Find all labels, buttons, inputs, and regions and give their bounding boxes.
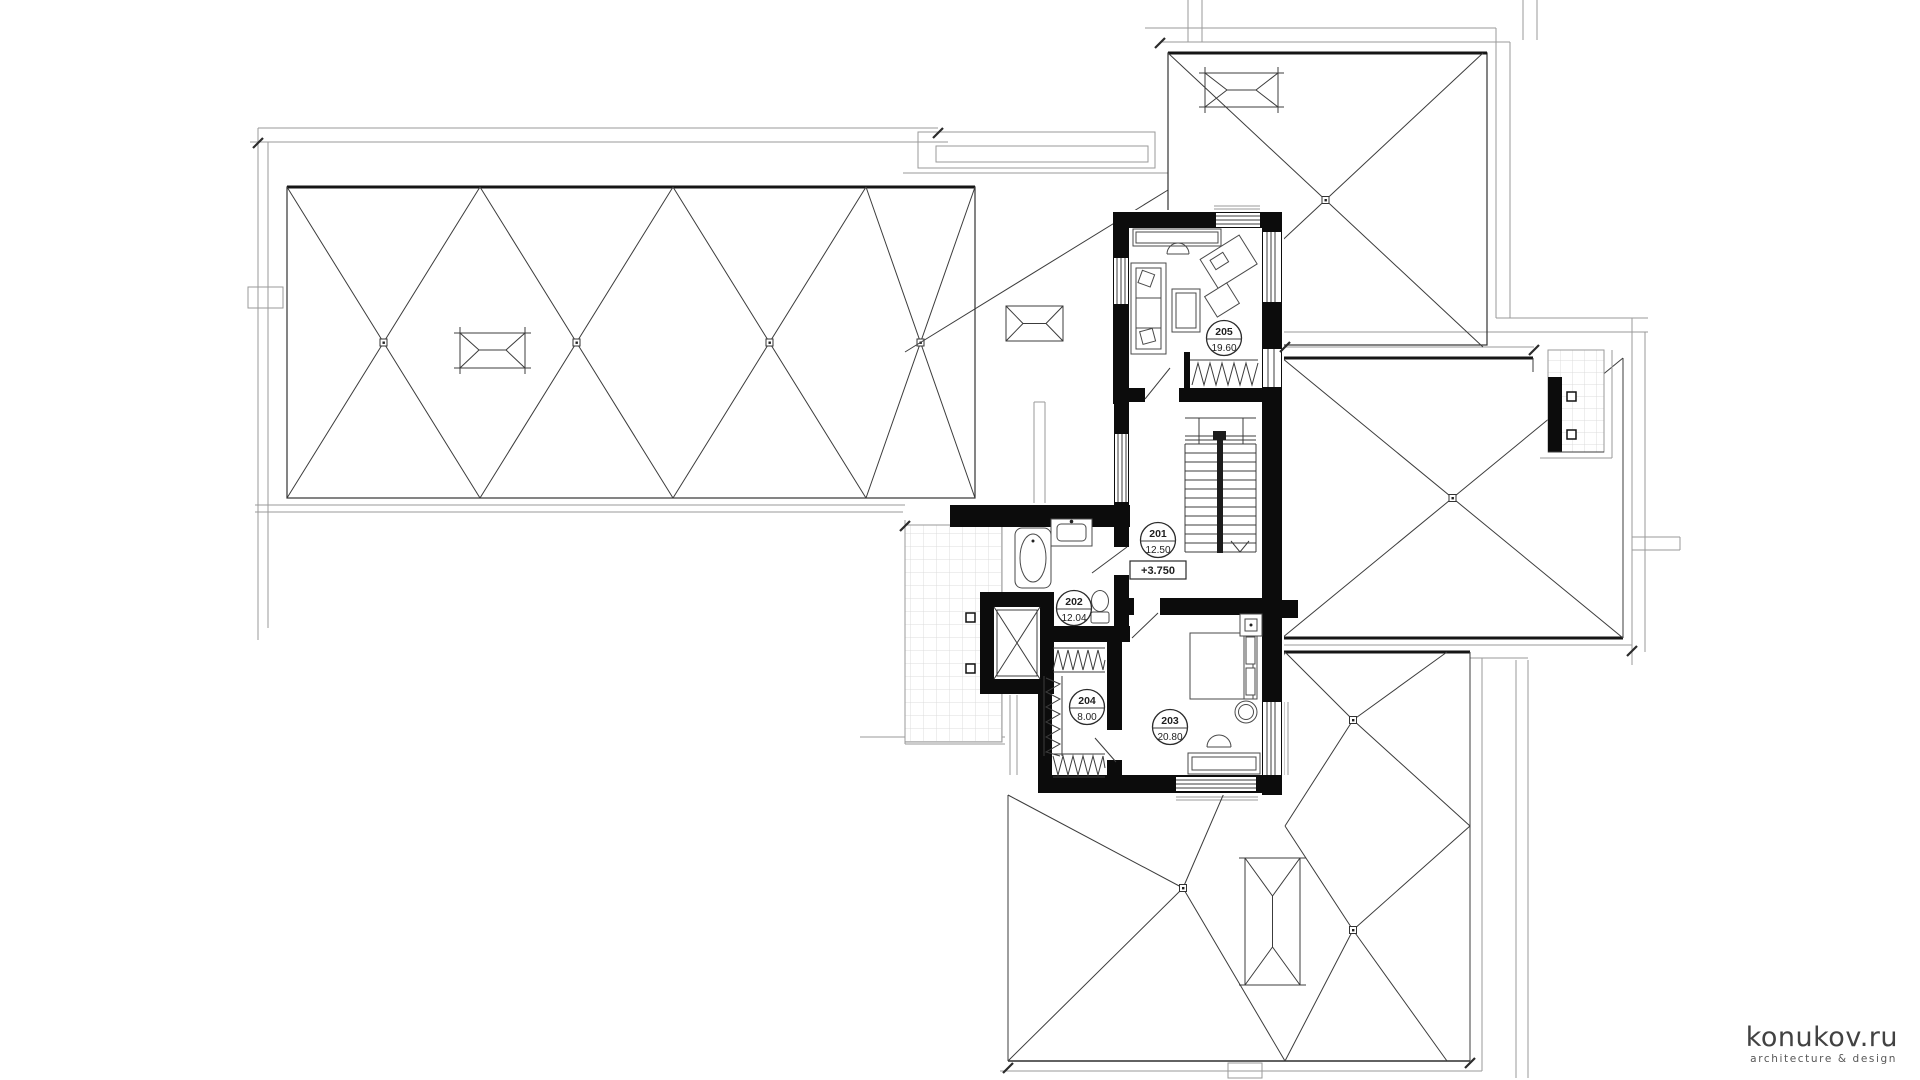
round-table [1235,701,1257,723]
room-area: 12.04 [1061,613,1086,624]
room-number: 202 [1065,596,1083,608]
terrace-post [966,664,975,673]
skylight-icon [1199,67,1284,113]
room-label-205: 205 19.60 [1207,321,1242,356]
balcony-post [1567,430,1576,439]
toilet [1091,591,1109,624]
logo-brand-text: konukov.ru [1746,1022,1898,1053]
logo: konukov.ru architecture & design [1746,1022,1898,1065]
cabinet-unit [1240,614,1262,636]
room-number: 201 [1149,528,1167,540]
logo-tagline-text: architecture & design [1750,1053,1897,1065]
pillow [1140,328,1156,344]
room-area: 12.50 [1145,545,1170,556]
bathtub [1015,528,1051,588]
desk [1188,753,1260,774]
room-number: 205 [1215,326,1233,338]
pillow [1246,668,1255,695]
room-label-202: 202 12.04 [1057,591,1092,626]
window [1263,702,1281,775]
balcony-post [1567,392,1576,401]
vanity-sink [1051,519,1092,546]
room-number: 203 [1161,715,1179,727]
elevator-shaft [980,592,1054,694]
skylight-icon [454,327,531,374]
window [1176,777,1256,791]
bed [1190,633,1257,699]
window [1263,232,1281,302]
room-label-201: 201 12.50 [1141,523,1176,558]
blueprint-canvas: 201 12.50 202 12.04 203 20.80 204 8.00 2… [0,0,1920,1080]
room-label-204: 204 8.00 [1070,690,1105,725]
pillow [1246,637,1255,664]
sofa [1131,263,1166,354]
window [1216,213,1260,227]
window [1115,434,1128,502]
room-area: 19.60 [1211,343,1236,354]
terrace-post [966,613,975,622]
elevation-value: +3.750 [1141,565,1175,577]
balcony [1540,350,1612,458]
room-number: 204 [1078,695,1096,707]
roof-left [287,187,1168,498]
room-area: 20.80 [1157,732,1182,743]
skylight-icon [1006,306,1063,341]
window [1114,258,1128,304]
window [1263,349,1281,387]
skylight-icon [1239,858,1306,985]
room-area: 8.00 [1077,712,1097,723]
coffee-table [1172,289,1200,332]
room-label-203: 203 20.80 [1153,710,1188,745]
elevation-badge: +3.750 [1130,561,1186,579]
roof-junction-marker [380,339,924,346]
